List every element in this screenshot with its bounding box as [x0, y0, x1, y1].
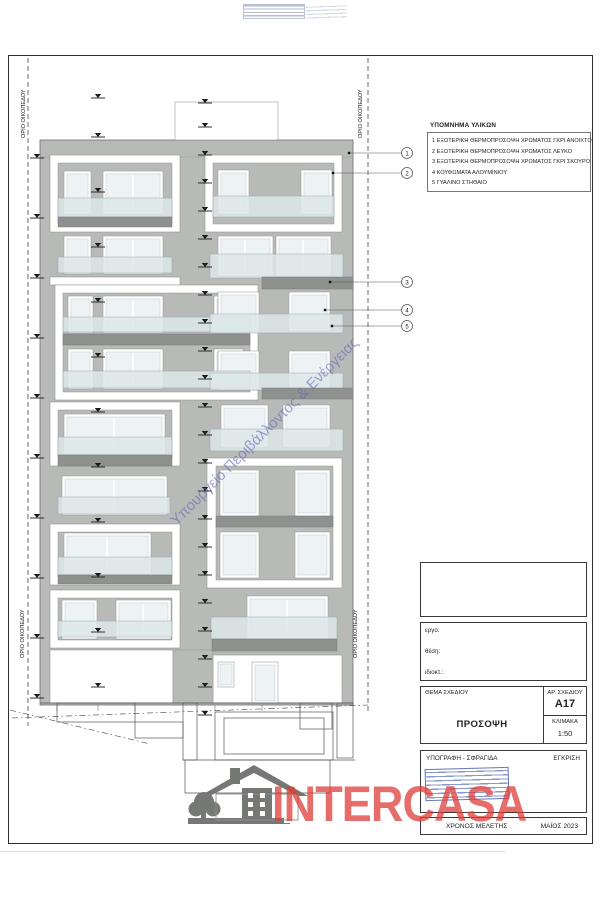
window [295, 532, 330, 578]
number-scale-cell: ΑΡ. ΣΧΕΔΙΟΥ A17 ΚΛΙΜΑΚΑ 1:50 [544, 687, 586, 743]
titleblock-subject: ΘΕΜΑ ΣΧΕΔΙΟΥ ΠΡΟΣΟΨΗ ΑΡ. ΣΧΕΔΙΟΥ A17 ΚΛΙ… [420, 686, 587, 744]
window [295, 470, 330, 516]
boundary-label: ΟΡΙΟ ΟΙΚΟΠΕΔΟΥ [21, 89, 27, 138]
subject-cell: ΘΕΜΑ ΣΧΕΔΙΟΥ ΠΡΟΣΟΨΗ [421, 687, 544, 743]
titleblock-blank-panel [420, 562, 587, 617]
drawing-number-value: A17 [544, 698, 586, 710]
legend-item: 5 ΓΥΑΛΙΝΟ ΣΤΗΘΑΙΟ [432, 178, 588, 189]
study-date-value: ΜΑΪΟΣ 2023 [541, 823, 578, 830]
window [218, 662, 234, 687]
project-label: εργο: [425, 627, 582, 634]
subject-value: ΠΡΟΣΟΨΗ [421, 719, 543, 730]
legend-item: 1 ΕΞΩΤΕΡΙΚΗ ΘΕΡΜΟΠΡΟΣΟΨΗ ΧΡΩΜΑΤΟΣ ΓΚΡΙ Α… [432, 136, 588, 147]
callout-1: 1 [348, 148, 413, 159]
legend-item: 2 ΕΞΩΤΕΡΙΚΗ ΘΕΡΜΟΠΡΟΣΟΨΗ ΧΡΩΜΑΤΟΣ ΛΕΥΚΟ [432, 147, 588, 158]
drawing-sheet: 1 2 3 4 5 ΟΡΙΟ ΟΙΚΟΠΕΔΟΥ ΟΡΙΟ ΟΙΚΟΠΕΔΟΥ … [0, 0, 600, 900]
boundary-label: ΟΡΙΟ ΟΙΚΟΠΕΔΟΥ [358, 89, 364, 138]
boundary-label: ΟΡΙΟ ΟΙΚΟΠΕΔΟΥ [20, 609, 26, 658]
owner-label: ιδιοκτ.: [425, 669, 582, 676]
stair-bulkhead [175, 102, 278, 140]
subject-label: ΘΕΜΑ ΣΧΕΔΙΟΥ [425, 690, 468, 696]
legend-title: ΥΠΟΜΝΗΜΑ ΥΛΙΚΩΝ [430, 122, 591, 129]
signature-label: ΥΠΟΓΡΑΦΗ - ΣΦΡΑΓΙΔΑ [426, 755, 498, 762]
drawing-number-label: ΑΡ. ΣΧΕΔΙΟΥ [544, 690, 586, 696]
window [220, 532, 259, 578]
legend-item: 3 ΕΞΩΤΕΡΙΚΗ ΘΕΡΜΟΠΡΟΣΟΨΗ ΧΡΩΜΑΤΟΣ ΓΚΡΙ Σ… [432, 157, 588, 168]
titleblock-project-info: εργο: θέση: ιδιοκτ.: [420, 622, 587, 681]
location-label: θέση: [425, 648, 582, 655]
entrance-door [252, 662, 278, 703]
scale-value: 1:50 [544, 729, 586, 738]
legend-item: 4 ΚΟΥΦΩΜΑΤΑ ΑΛΟΥΜΙΝΙΟΥ [432, 168, 588, 179]
legend-box: 1 ΕΞΩΤΕΡΙΚΗ ΘΕΡΜΟΠΡΟΣΟΨΗ ΧΡΩΜΑΤΟΣ ΓΚΡΙ Α… [427, 132, 591, 192]
scale-label: ΚΛΙΜΑΚΑ [544, 719, 586, 725]
boundary-label: ΟΡΙΟ ΟΙΚΟΠΕΔΟΥ [353, 609, 359, 658]
cell-divider [544, 715, 586, 716]
materials-legend: ΥΠΟΜΝΗΜΑ ΥΛΙΚΩΝ 1 ΕΞΩΤΕΡΙΚΗ ΘΕΡΜΟΠΡΟΣΟΨΗ… [427, 122, 591, 192]
logo-text: INTERCASA [272, 779, 526, 829]
approval-label: ΕΓΚΡΙΣΗ [553, 755, 580, 762]
